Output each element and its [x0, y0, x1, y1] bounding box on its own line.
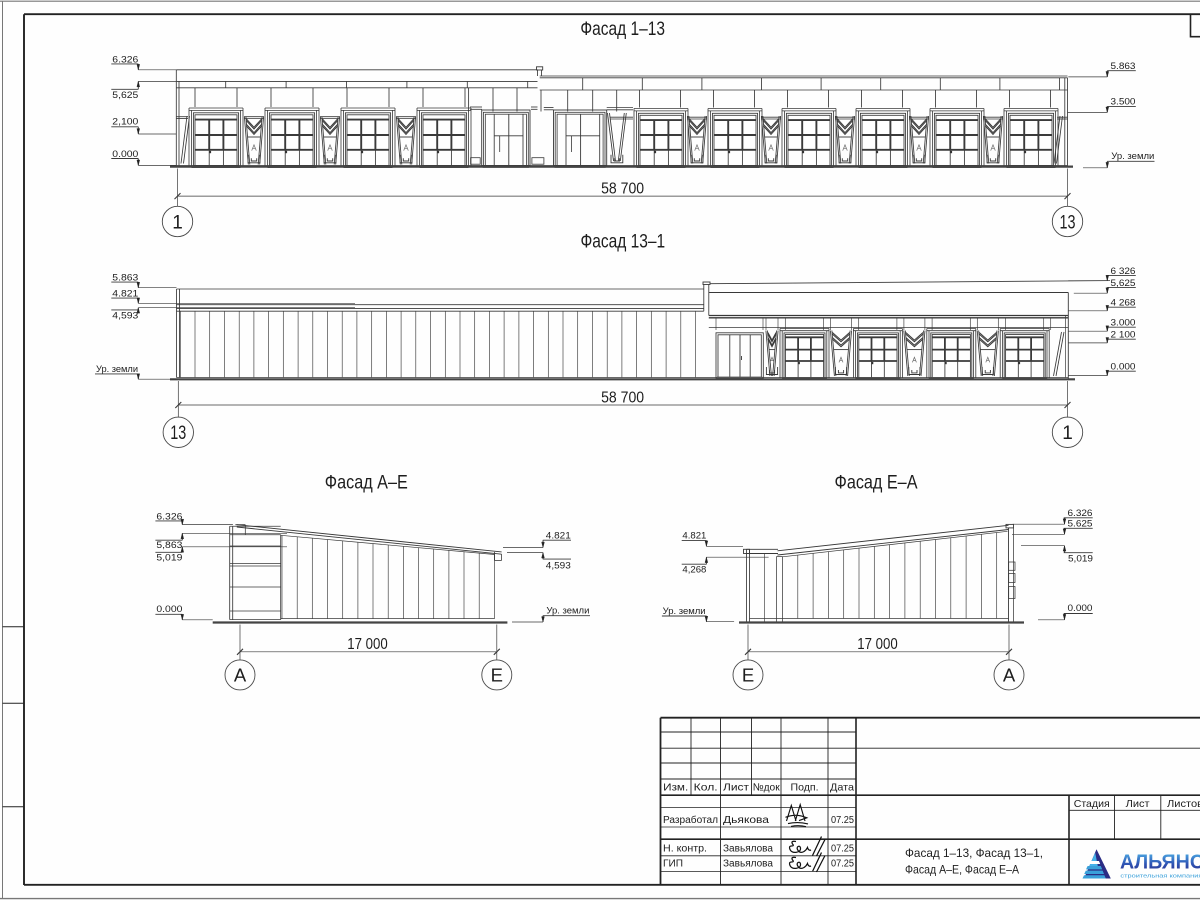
svg-text:4,268: 4,268 — [682, 564, 706, 575]
svg-text:Кол.: Кол. — [694, 782, 718, 794]
svg-text:5,019: 5,019 — [156, 552, 182, 563]
svg-text:№док: №док — [753, 782, 780, 794]
svg-text:Ур. земли: Ур. земли — [546, 605, 589, 616]
svg-text:13: 13 — [1060, 212, 1076, 233]
svg-text:07.25: 07.25 — [831, 815, 855, 826]
svg-text:1: 1 — [1062, 423, 1073, 444]
svg-text:3.500: 3.500 — [1111, 96, 1136, 107]
svg-text:ГИП: ГИП — [663, 859, 683, 870]
svg-text:0.000: 0.000 — [156, 603, 182, 614]
svg-text:Фасад А–Е: Фасад А–Е — [325, 472, 408, 494]
svg-text:2 100: 2 100 — [1111, 329, 1136, 340]
svg-text:4.821: 4.821 — [546, 529, 571, 540]
svg-text:Завьялова: Завьялова — [723, 859, 774, 870]
svg-text:Е: Е — [742, 665, 754, 686]
svg-text:4.821: 4.821 — [112, 288, 138, 299]
svg-text:1: 1 — [172, 212, 183, 233]
svg-text:Дата: Дата — [830, 782, 854, 794]
svg-text:5,625: 5,625 — [112, 89, 138, 100]
svg-text:Подп.: Подп. — [791, 782, 819, 794]
svg-text:07.25: 07.25 — [831, 859, 855, 870]
svg-text:5.863: 5.863 — [1111, 60, 1136, 71]
svg-text:58 700: 58 700 — [601, 181, 644, 198]
svg-text:5,625: 5,625 — [1111, 277, 1136, 288]
svg-text:Е: Е — [491, 665, 503, 686]
svg-text:6.326: 6.326 — [1068, 507, 1093, 518]
svg-text:Фасад 1–13, Фасад 13–1,: Фасад 1–13, Фасад 13–1, — [905, 846, 1043, 860]
svg-text:Фасад Е–А: Фасад Е–А — [835, 472, 918, 494]
svg-text:13: 13 — [170, 423, 186, 444]
svg-text:58 700: 58 700 — [601, 390, 644, 407]
svg-text:Ур. земли: Ур. земли — [96, 363, 138, 374]
svg-text:4,593: 4,593 — [546, 559, 571, 570]
svg-text:Лист: Лист — [723, 782, 749, 794]
svg-text:Листов: Листов — [1167, 798, 1200, 810]
svg-text:6.326: 6.326 — [112, 53, 138, 64]
svg-text:6 326: 6 326 — [1111, 265, 1136, 276]
svg-text:4,593: 4,593 — [112, 309, 138, 320]
svg-text:Фасад 13–1: Фасад 13–1 — [580, 231, 665, 253]
svg-text:Завьялова: Завьялова — [723, 844, 774, 855]
svg-text:5,019: 5,019 — [1068, 553, 1093, 564]
svg-text:АЛЬЯНС: АЛЬЯНС — [1120, 852, 1200, 874]
svg-text:Стадия: Стадия — [1074, 798, 1110, 810]
svg-text:0.000: 0.000 — [112, 148, 138, 159]
svg-text:Фасад А–Е, Фасад Е–А: Фасад А–Е, Фасад Е–А — [905, 863, 1019, 877]
svg-text:4 268: 4 268 — [1111, 297, 1136, 308]
svg-text:4.821: 4.821 — [682, 530, 706, 541]
svg-text:0.000: 0.000 — [1111, 361, 1136, 372]
svg-text:3.000: 3.000 — [1111, 317, 1136, 328]
svg-text:Ур. земли: Ур. земли — [663, 605, 706, 616]
svg-text:Фасад 1–13: Фасад 1–13 — [580, 18, 665, 40]
svg-text:Ур. земли: Ур. земли — [1111, 150, 1154, 161]
svg-text:Дьякова: Дьякова — [723, 815, 770, 826]
svg-text:17 000: 17 000 — [347, 636, 388, 653]
svg-text:Лист: Лист — [1126, 798, 1150, 810]
svg-text:А: А — [1003, 665, 1016, 686]
svg-text:5.863: 5.863 — [112, 272, 138, 283]
svg-text:А: А — [234, 665, 247, 686]
svg-text:2,100: 2,100 — [112, 116, 138, 127]
svg-text:5.625: 5.625 — [1068, 518, 1093, 529]
svg-text:Разработал: Разработал — [663, 815, 718, 826]
svg-text:Н. контр.: Н. контр. — [663, 844, 707, 855]
svg-text:0.000: 0.000 — [1068, 602, 1093, 613]
svg-text:17 000: 17 000 — [857, 636, 898, 653]
svg-text:строительная компания: строительная компания — [1120, 874, 1200, 880]
svg-text:5,863: 5,863 — [156, 539, 182, 550]
svg-text:Изм.: Изм. — [663, 782, 688, 794]
svg-text:07.25: 07.25 — [831, 844, 855, 855]
svg-text:6.326: 6.326 — [156, 510, 182, 521]
